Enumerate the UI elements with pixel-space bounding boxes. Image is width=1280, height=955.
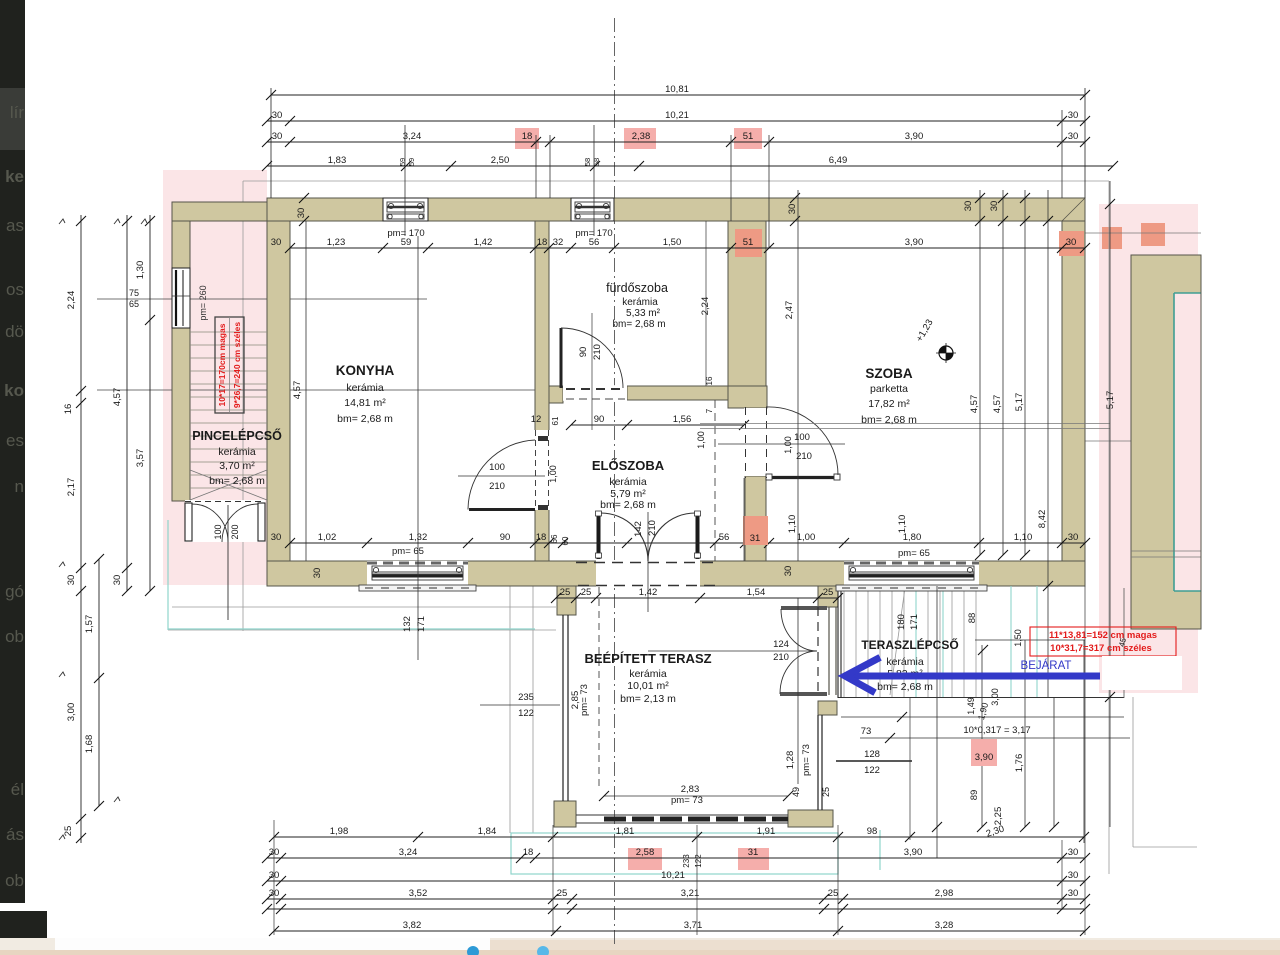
svg-text:3,90: 3,90 [904, 847, 923, 858]
svg-text:18: 18 [537, 237, 548, 248]
svg-text:2,24: 2,24 [700, 297, 711, 316]
svg-text:51: 51 [743, 131, 754, 142]
svg-text:59: 59 [398, 158, 407, 166]
svg-text:210: 210 [796, 451, 812, 462]
svg-text:9*26,7=240 cm széles: 9*26,7=240 cm széles [232, 322, 242, 409]
svg-text:90: 90 [578, 347, 589, 358]
svg-text:ob: ob [5, 871, 24, 890]
svg-text:10*0,317 = 3,17: 10*0,317 = 3,17 [963, 725, 1030, 736]
svg-text:1,57: 1,57 [84, 615, 95, 634]
svg-text:30: 30 [963, 201, 974, 212]
svg-text:3,00: 3,00 [66, 703, 77, 722]
svg-text:5,17: 5,17 [1105, 391, 1116, 410]
svg-text:25: 25 [560, 587, 571, 598]
svg-text:1,28: 1,28 [785, 751, 796, 770]
svg-text:pm= 73: pm= 73 [801, 744, 812, 776]
svg-text:32: 32 [553, 237, 564, 248]
svg-text:1,50: 1,50 [1013, 629, 1023, 647]
svg-text:os: os [6, 280, 24, 299]
svg-text:dö: dö [5, 322, 24, 341]
svg-text:142: 142 [633, 521, 644, 537]
svg-text:30: 30 [1068, 532, 1079, 543]
svg-text:30: 30 [272, 110, 283, 121]
svg-text:30: 30 [783, 566, 794, 577]
svg-text:8,42: 8,42 [1037, 510, 1048, 529]
svg-text:bm= 2,68 m: bm= 2,68 m [337, 413, 393, 425]
svg-text:75: 75 [129, 288, 139, 298]
svg-text:17,82 m²: 17,82 m² [868, 398, 910, 410]
svg-text:1,23: 1,23 [327, 237, 346, 248]
svg-text:18: 18 [536, 532, 547, 543]
svg-text:1,10: 1,10 [787, 515, 798, 534]
svg-text:pm= 73: pm= 73 [671, 795, 703, 806]
svg-text:66: 66 [550, 534, 559, 543]
svg-text:31: 31 [750, 533, 761, 544]
svg-text:pm= 170: pm= 170 [575, 228, 612, 239]
svg-text:1,50: 1,50 [663, 237, 682, 248]
svg-text:pm= 260: pm= 260 [198, 285, 208, 320]
svg-text:1,00: 1,00 [783, 436, 793, 454]
svg-text:14,81 m²: 14,81 m² [344, 397, 386, 409]
svg-text:30: 30 [271, 532, 282, 543]
svg-text:122: 122 [694, 854, 703, 868]
svg-text:ko: ko [4, 381, 24, 400]
svg-text:30: 30 [271, 237, 282, 248]
svg-text:11*13,81=152 cm magas: 11*13,81=152 cm magas [1049, 630, 1157, 641]
svg-text:210: 210 [489, 481, 505, 492]
svg-text:122: 122 [864, 765, 880, 776]
svg-text:210: 210 [773, 652, 789, 663]
svg-text:210: 210 [647, 520, 658, 536]
svg-text:10,21: 10,21 [661, 870, 685, 881]
svg-text:1,32: 1,32 [409, 532, 428, 543]
svg-text:31: 31 [748, 847, 759, 858]
svg-text:4,57: 4,57 [292, 381, 303, 400]
svg-text:132: 132 [402, 616, 413, 632]
svg-text:25: 25 [821, 787, 831, 797]
svg-text:bm= 2,13 m: bm= 2,13 m [620, 693, 676, 705]
svg-text:171: 171 [909, 614, 920, 630]
svg-text:5,33 m²: 5,33 m² [626, 308, 661, 319]
svg-text:es: es [6, 431, 24, 450]
svg-text:124: 124 [773, 639, 789, 650]
svg-text:73: 73 [861, 726, 872, 737]
svg-text:51: 51 [743, 237, 754, 248]
svg-text:1,00: 1,00 [548, 465, 558, 483]
svg-text:4,57: 4,57 [992, 395, 1003, 414]
svg-text:30: 30 [1066, 237, 1077, 248]
svg-text:59: 59 [407, 158, 416, 166]
svg-text:58: 58 [583, 158, 592, 166]
svg-text:100: 100 [213, 524, 223, 539]
svg-text:1,54: 1,54 [747, 587, 766, 598]
svg-text:30: 30 [112, 575, 123, 586]
svg-text:1,83: 1,83 [328, 155, 347, 166]
svg-text:10,81: 10,81 [665, 84, 689, 95]
svg-text:1,42: 1,42 [474, 237, 493, 248]
svg-text:25: 25 [828, 888, 839, 899]
svg-text:SZOBA: SZOBA [865, 366, 913, 381]
svg-text:235: 235 [518, 692, 534, 703]
svg-text:30: 30 [1068, 888, 1079, 899]
svg-text:16: 16 [63, 404, 74, 415]
svg-text:10,01 m²: 10,01 m² [627, 680, 669, 692]
svg-text:gó: gó [5, 582, 24, 601]
svg-text:30: 30 [296, 208, 307, 219]
svg-text:bm= 2,68 m: bm= 2,68 m [877, 681, 933, 693]
svg-text:2,85: 2,85 [570, 691, 581, 710]
svg-text:kerámia: kerámia [622, 297, 658, 308]
svg-text:3,00: 3,00 [990, 688, 1000, 706]
svg-text:90: 90 [500, 532, 511, 543]
svg-text:BEÉPÍTETT TERASZ: BEÉPÍTETT TERASZ [584, 651, 711, 666]
svg-text:233: 233 [682, 854, 691, 868]
svg-text:1,56: 1,56 [673, 414, 692, 425]
svg-text:bm= 2,68 m: bm= 2,68 m [861, 414, 917, 426]
svg-text:ke: ke [5, 167, 24, 186]
svg-text:25: 25 [581, 587, 592, 598]
svg-text:1,42: 1,42 [639, 587, 658, 598]
svg-text:2,47: 2,47 [784, 301, 795, 320]
svg-text:1,10: 1,10 [1014, 532, 1033, 543]
svg-text:58: 58 [592, 158, 601, 166]
svg-text:1,49: 1,49 [966, 697, 976, 715]
svg-text:3,24: 3,24 [403, 131, 422, 142]
svg-text:89: 89 [969, 790, 980, 801]
svg-text:1,91: 1,91 [757, 826, 776, 837]
svg-text:ob: ob [5, 627, 24, 646]
svg-text:2,17: 2,17 [66, 478, 77, 497]
svg-text:30: 30 [66, 575, 77, 586]
svg-text:3,21: 3,21 [681, 888, 700, 899]
svg-text:4,57: 4,57 [112, 388, 123, 407]
svg-text:88: 88 [967, 613, 978, 624]
svg-text:30: 30 [1068, 110, 1079, 121]
svg-text:pm= 65: pm= 65 [392, 546, 424, 557]
svg-text:3,90: 3,90 [905, 131, 924, 142]
svg-text:3,82: 3,82 [403, 920, 422, 931]
svg-text:61: 61 [551, 416, 560, 425]
svg-text:kerámia: kerámia [218, 446, 256, 458]
svg-text:2,98: 2,98 [935, 888, 954, 899]
svg-text:180: 180 [896, 614, 907, 630]
svg-text:TERASZLÉPCSŐ: TERASZLÉPCSŐ [861, 637, 958, 652]
svg-text:4,57: 4,57 [969, 395, 980, 414]
svg-text:6,49: 6,49 [829, 155, 848, 166]
svg-text:3,52: 3,52 [409, 888, 428, 899]
svg-text:10*31,7=317 cm széles: 10*31,7=317 cm széles [1050, 643, 1152, 654]
svg-text:30: 30 [1068, 131, 1079, 142]
svg-text:1,81: 1,81 [616, 826, 635, 837]
svg-text:ás: ás [6, 825, 24, 844]
svg-text:12: 12 [531, 414, 542, 425]
svg-text:parketta: parketta [870, 383, 908, 395]
svg-text:1,98: 1,98 [330, 826, 349, 837]
svg-text:BEJÁRAT: BEJÁRAT [1021, 659, 1072, 672]
svg-text:1,02: 1,02 [318, 532, 337, 543]
svg-text:2,24: 2,24 [66, 291, 77, 310]
svg-text:n: n [15, 477, 24, 496]
svg-text:KONYHA: KONYHA [336, 363, 395, 378]
svg-text:2,38: 2,38 [632, 131, 651, 142]
svg-text:kerámia: kerámia [609, 476, 647, 488]
svg-text:128: 128 [864, 749, 880, 760]
svg-text:7: 7 [705, 408, 714, 413]
svg-text:90: 90 [594, 414, 605, 425]
svg-text:30: 30 [1068, 847, 1079, 858]
svg-text:65: 65 [129, 299, 139, 309]
svg-text:2,25: 2,25 [993, 807, 1004, 826]
svg-text:210: 210 [592, 344, 603, 360]
svg-text:3,90: 3,90 [975, 752, 994, 763]
svg-text:1,10: 1,10 [897, 515, 908, 534]
svg-text:1,00: 1,00 [696, 431, 706, 449]
svg-text:3,71: 3,71 [684, 920, 703, 931]
svg-text:10,21: 10,21 [665, 110, 689, 121]
svg-text:30: 30 [1068, 870, 1079, 881]
svg-text:3,90: 3,90 [905, 237, 924, 248]
svg-text:pm= 65: pm= 65 [898, 548, 930, 559]
svg-text:171: 171 [416, 616, 427, 632]
svg-text:98: 98 [867, 826, 878, 837]
svg-text:100: 100 [794, 432, 810, 443]
svg-text:1,76: 1,76 [1014, 754, 1025, 773]
svg-text:3,24: 3,24 [399, 847, 418, 858]
svg-text:1,00: 1,00 [797, 532, 816, 543]
svg-text:PINCELÉPCSŐ: PINCELÉPCSŐ [192, 428, 282, 443]
svg-text:él: él [11, 780, 24, 799]
svg-text:ELŐSZOBA: ELŐSZOBA [592, 458, 665, 473]
svg-text:25: 25 [823, 587, 834, 598]
svg-text:1,30: 1,30 [135, 261, 146, 280]
svg-text:1,68: 1,68 [84, 735, 95, 754]
svg-text:2,83: 2,83 [681, 784, 700, 795]
svg-text:3,70 m²: 3,70 m² [219, 460, 255, 472]
svg-text:bm= 2,68 m: bm= 2,68 m [612, 319, 665, 330]
svg-text:60: 60 [561, 536, 570, 545]
svg-text:30: 30 [272, 131, 283, 142]
svg-text:kerámia: kerámia [346, 382, 384, 394]
svg-text:kerámia: kerámia [629, 668, 667, 680]
svg-text:2,58: 2,58 [636, 847, 655, 858]
svg-text:lír: lír [10, 103, 25, 122]
svg-text:as: as [6, 216, 24, 235]
svg-text:bm= 2,68 m: bm= 2,68 m [600, 499, 656, 511]
svg-text:10*17=170cm magas: 10*17=170cm magas [217, 323, 227, 406]
svg-text:bm= 2,68 m: bm= 2,68 m [209, 475, 265, 487]
svg-text:2,50: 2,50 [491, 155, 510, 166]
svg-text:pm= 170: pm= 170 [387, 228, 424, 239]
svg-text:30: 30 [787, 204, 798, 215]
svg-text:56: 56 [719, 532, 730, 543]
svg-text:18: 18 [522, 131, 533, 142]
svg-text:5,17: 5,17 [1014, 393, 1025, 412]
svg-text:25: 25 [63, 826, 74, 837]
svg-text:18: 18 [523, 847, 534, 858]
svg-text:25: 25 [557, 888, 568, 899]
svg-text:fürdőszoba: fürdőszoba [606, 281, 668, 295]
svg-text:122: 122 [518, 708, 534, 719]
svg-text:30: 30 [312, 568, 323, 579]
svg-text:kerámia: kerámia [886, 656, 924, 668]
svg-text:1,84: 1,84 [478, 826, 497, 837]
svg-text:3,28: 3,28 [935, 920, 954, 931]
svg-text:200: 200 [230, 524, 240, 539]
svg-text:100: 100 [489, 462, 505, 473]
svg-text:3,57: 3,57 [135, 449, 146, 468]
